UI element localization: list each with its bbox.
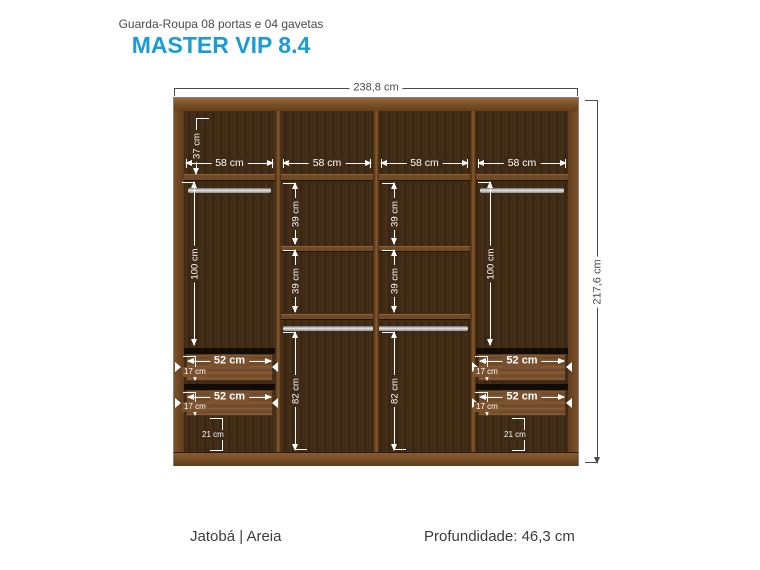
base-gap-label: 21 cm [502, 430, 528, 440]
dim-arrow-up [391, 331, 397, 338]
dim-tick [210, 418, 223, 419]
drawer-width-dimension: 52 cm [188, 361, 271, 362]
dim-arrow-down [487, 339, 493, 346]
depth-spec: Profundidade: 46,3 cm [424, 528, 575, 545]
dim-arrow-down [191, 339, 197, 346]
dim-tick [183, 392, 196, 393]
dim-arrow-right [267, 160, 274, 166]
finish-name: Jatobá | Areia [190, 528, 281, 545]
dim-tick [577, 88, 578, 96]
section-width-label: 58 cm [309, 157, 346, 170]
shelf-gap-dimension: 39 cm [394, 183, 395, 244]
drawer-width-label: 52 cm [502, 355, 541, 368]
base-gap-label: 21 cm [200, 430, 226, 440]
dim-arrow-up [292, 182, 298, 189]
dim-arrow-right [560, 160, 567, 166]
top-panel [174, 98, 578, 112]
dim-arrow-up [292, 331, 298, 338]
product-dimension-diagram: Guarda-Roupa 08 portas e 04 gavetas MAST… [0, 0, 760, 570]
drawer-height-label: 17 cm [182, 367, 208, 377]
section-width-dimension: 58 cm [478, 163, 566, 164]
dim-tick [475, 392, 488, 393]
shelf-gap-label: 39 cm [290, 265, 302, 297]
shelf-gap-label: 39 cm [290, 198, 302, 230]
hanging-space-dimension: 100 cm [194, 182, 195, 345]
lower-space-label: 82 cm [290, 375, 302, 407]
product-subtitle: Guarda-Roupa 08 portas e 04 gavetas [100, 18, 342, 32]
dim-arrow-up [292, 249, 298, 256]
dim-arrow-up [191, 181, 197, 188]
dim-arrow-left [187, 358, 194, 364]
dim-arrow-right [365, 160, 372, 166]
dim-tick [295, 449, 307, 450]
section-width-dimension: 58 cm [381, 163, 468, 164]
drawer-width-dimension: 52 cm [188, 397, 271, 398]
section-width-label: 58 cm [211, 157, 248, 170]
drawer-width-label: 52 cm [502, 391, 541, 404]
dim-tick [196, 118, 209, 119]
top-shelf-height-dimension: 37 cm [196, 118, 197, 174]
dim-arrow-up [391, 249, 397, 256]
overall-width-dimension: 238,8 cm [174, 88, 578, 89]
drawer-width-dimension: 52 cm [480, 361, 564, 362]
shelf-gap-label: 39 cm [389, 265, 401, 297]
shelf-gap-dimension: 39 cm [295, 250, 296, 312]
product-title: MASTER VIP 8.4 [100, 33, 342, 57]
dim-arrow-up [391, 182, 397, 189]
shelf-gap-dimension: 39 cm [295, 183, 296, 244]
drawer-width-label: 52 cm [210, 355, 249, 368]
dim-arrow-up [487, 181, 493, 188]
section-width-label: 58 cm [406, 157, 443, 170]
section-width-label: 58 cm [504, 157, 541, 170]
drawer-height-label: 17 cm [474, 402, 500, 412]
dim-arrow-left [477, 160, 484, 166]
drawer-height-label: 17 cm [182, 402, 208, 412]
dim-arrow-down [193, 168, 199, 175]
drawer-width-label: 52 cm [210, 391, 249, 404]
dim-arrow-left [185, 160, 192, 166]
dim-tick [585, 100, 598, 101]
base-panel [174, 452, 578, 466]
dim-arrow-down [292, 238, 298, 245]
hanging-rod [480, 188, 564, 193]
dim-arrow-down [391, 238, 397, 245]
dim-arrow-down [292, 306, 298, 313]
dim-tick [512, 418, 525, 419]
overall-height-label: 217,6 cm [592, 256, 605, 307]
shelf-gap-label: 39 cm [389, 198, 401, 230]
hanging-space-dimension: 100 cm [490, 182, 491, 345]
drawer-marker-icon [561, 362, 572, 372]
divider-panel [373, 111, 379, 452]
lower-space-label: 82 cm [389, 375, 401, 407]
drawer-height-label: 17 cm [474, 367, 500, 377]
header: Guarda-Roupa 08 portas e 04 gavetas MAST… [100, 18, 342, 57]
lower-space-dimension: 82 cm [295, 332, 296, 450]
dim-arrow-left [187, 394, 194, 400]
drawer-width-dimension: 52 cm [480, 397, 564, 398]
overall-width-label: 238,8 cm [349, 82, 402, 95]
dim-arrow-right [462, 160, 469, 166]
overall-height-dimension: 217,6 cm [597, 100, 598, 463]
hanging-rod [188, 188, 271, 193]
dim-arrow-left [282, 160, 289, 166]
lower-space-dimension: 82 cm [394, 332, 395, 450]
hanging-space-label: 100 cm [485, 245, 497, 282]
dim-tick [174, 88, 175, 96]
dim-arrow-down [594, 457, 600, 464]
hanging-space-label: 100 cm [189, 245, 201, 282]
dim-tick [183, 356, 196, 357]
shelf-gap-dimension: 39 cm [394, 250, 395, 312]
wardrobe: 37 cm 58 cm 58 cm 58 cm 58 cm 1 [174, 98, 578, 465]
dim-tick [512, 450, 525, 451]
drawer-marker-icon [561, 398, 572, 408]
section-width-dimension: 58 cm [283, 163, 371, 164]
section-width-dimension: 58 cm [186, 163, 273, 164]
drawer-marker-icon [267, 362, 278, 372]
dim-arrow-down [391, 306, 397, 313]
dim-tick [210, 450, 223, 451]
dim-arrow-left [380, 160, 387, 166]
dim-tick [475, 356, 488, 357]
top-shelf-height-label: 37 cm [191, 130, 203, 162]
dim-tick [394, 449, 406, 450]
drawer-marker-icon [267, 398, 278, 408]
